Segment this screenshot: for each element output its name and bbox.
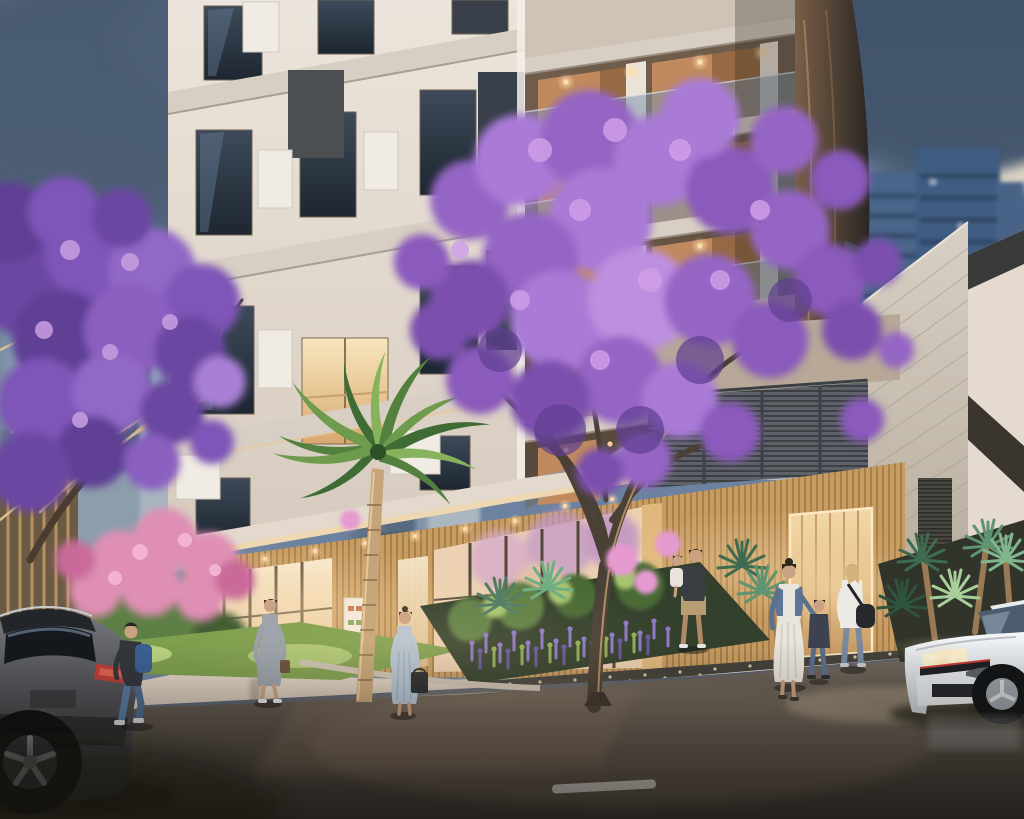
juliet-balcony (364, 132, 398, 190)
juliet-balcony (258, 330, 292, 388)
screenshot-canvas (0, 0, 1024, 819)
recessed-panel (288, 70, 344, 158)
rendering-scene (0, 0, 1024, 819)
architectural-rendering (0, 0, 1024, 819)
shoulder-bag (856, 604, 875, 628)
juliet-balcony (243, 2, 279, 52)
juliet-balcony (258, 150, 292, 208)
